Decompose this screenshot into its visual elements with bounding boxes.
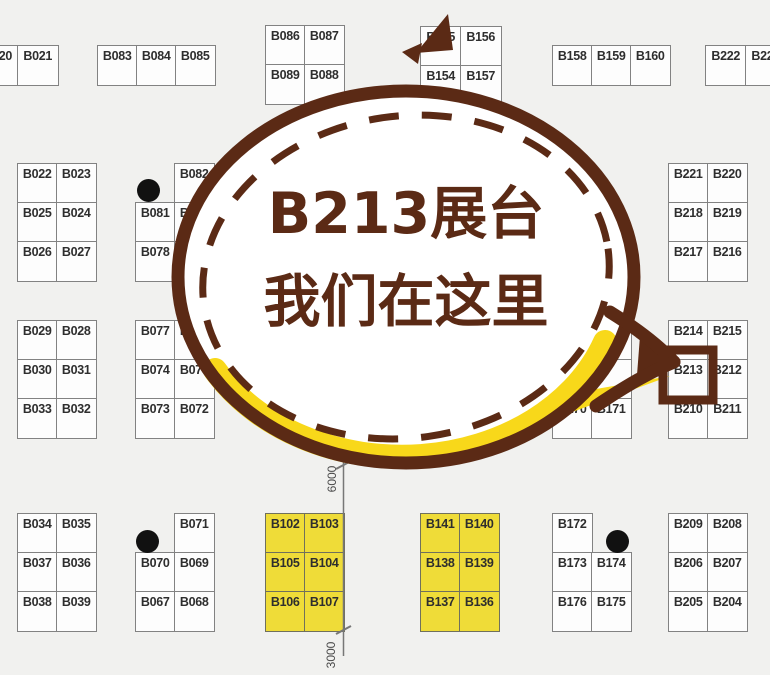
booth-label: B167	[597, 324, 626, 338]
booth-b221: B221	[668, 163, 709, 204]
booth-label: B087	[310, 29, 339, 43]
booth-b154: B154	[420, 65, 462, 106]
booth-b032: B032	[56, 398, 97, 439]
booth-label: B026	[23, 245, 52, 259]
booth-b083: B083	[97, 45, 138, 86]
booth-b031: B031	[56, 359, 97, 400]
booth-label: B221	[674, 167, 703, 181]
booth-label: B160	[636, 49, 665, 63]
booth-label: B029	[23, 324, 52, 338]
booth-label: B103	[310, 517, 339, 531]
booth-label: B206	[674, 556, 703, 570]
booth-b068: B068	[174, 591, 215, 632]
booth-label: B174	[597, 556, 626, 570]
booth-b138: B138	[420, 552, 461, 593]
booth-b222: B222	[705, 45, 747, 86]
booth-label: B156	[466, 30, 495, 44]
booth-b085: B085	[175, 45, 216, 86]
booth-label: B027	[62, 245, 91, 259]
booth-b087: B087	[304, 25, 345, 66]
booth-b207: B207	[707, 552, 748, 593]
booth-b035: B035	[56, 513, 97, 554]
booth-b218: B218	[668, 202, 709, 243]
booth-label: B170	[558, 402, 587, 416]
booth-label: B068	[180, 595, 209, 609]
booth-b038: B038	[17, 591, 58, 632]
booth-label: B023	[62, 167, 91, 181]
booth-label: B088	[310, 68, 339, 82]
booth-label: B085	[181, 49, 210, 63]
booth-b208: B208	[707, 513, 748, 554]
booth-label: B220	[713, 167, 742, 181]
booth-b037: B037	[17, 552, 58, 593]
booth-label: B210	[674, 402, 703, 416]
booth-label: B158	[558, 49, 587, 63]
booth-b070: B070	[135, 552, 176, 593]
booth-b106: B106	[265, 591, 306, 632]
booth-b172: B172	[552, 513, 593, 554]
booth-b219: B219	[707, 202, 748, 243]
booth-b206: B206	[668, 552, 709, 593]
booth-b104: B104	[304, 552, 345, 593]
dimension-label-3000: 3000	[324, 635, 338, 675]
booth-b171: B171	[591, 398, 632, 439]
booth-b022: B022	[17, 163, 58, 204]
booth-b213: B213	[668, 359, 709, 400]
booth-b107: B107	[304, 591, 345, 632]
booth-b089: B089	[265, 64, 306, 105]
booth-b071: B071	[174, 513, 215, 554]
booth-label: B176	[558, 595, 587, 609]
booth-b216: B216	[707, 241, 748, 282]
booth-label: B073	[141, 402, 170, 416]
booth-label: B035	[62, 517, 91, 531]
booth-b029: B029	[17, 320, 58, 361]
booth-label: B067	[141, 595, 170, 609]
booth-b030: B030	[17, 359, 58, 400]
booth-b160: B160	[630, 45, 671, 86]
booth-label: B141	[426, 517, 455, 531]
booth-b173: B173	[552, 552, 593, 593]
booth-b175: B175	[591, 591, 632, 632]
booth-label: B215	[713, 324, 742, 338]
booth-label: B022	[23, 167, 52, 181]
booth-b102: B102	[265, 513, 306, 554]
booth-b217: B217	[668, 241, 709, 282]
booth-label: B082	[180, 167, 209, 181]
floor-map: B020B021B083B084B085B086B087B089B088B155…	[0, 0, 770, 656]
booth-b103: B103	[304, 513, 345, 554]
booth-b074: B074	[135, 359, 176, 400]
booth-b215: B215	[707, 320, 748, 361]
booth-b080: B080	[174, 202, 215, 243]
booth-b170: B170	[552, 398, 593, 439]
booth-b155: B155	[420, 26, 462, 67]
booth-b159: B159	[591, 45, 632, 86]
booth-b069: B069	[174, 552, 215, 593]
booth-label: B159	[597, 49, 626, 63]
booth-label: B171	[597, 402, 626, 416]
booth-b077: B077	[135, 320, 176, 361]
booth-label: B217	[674, 245, 703, 259]
booth-b139: B139	[459, 552, 500, 593]
booth-label: B034	[23, 517, 52, 531]
booth-label: B024	[62, 206, 91, 220]
booth-b141: B141	[420, 513, 461, 554]
booth-label: B037	[23, 556, 52, 570]
booth-label: B071	[180, 517, 209, 531]
booth-b075: B075	[174, 359, 215, 400]
booth-label: B140	[465, 517, 494, 531]
booth-label: B209	[674, 517, 703, 531]
booth-b167: B167	[591, 320, 632, 361]
dimension-label-6000: 6000	[325, 459, 339, 499]
booth-label: B021	[23, 49, 52, 63]
pillar-dot	[606, 530, 629, 553]
booth-label: B213	[674, 363, 703, 377]
booth-b036: B036	[56, 552, 97, 593]
booth-label: B033	[23, 402, 52, 416]
booth-cell-unlabeled	[552, 320, 593, 361]
booth-label: B070	[141, 556, 170, 570]
booth-b209: B209	[668, 513, 709, 554]
booth-label: B216	[713, 245, 742, 259]
booth-label: B102	[271, 517, 300, 531]
booth-cell-unlabeled	[552, 359, 593, 400]
booth-b214: B214	[668, 320, 709, 361]
booth-b174: B174	[591, 552, 632, 593]
booth-label: B077	[141, 324, 170, 338]
booth-label: B136	[465, 595, 494, 609]
booth-label: B157	[466, 69, 495, 83]
booth-label: B080	[180, 206, 209, 220]
booth-label: B155	[426, 30, 455, 44]
booth-b205: B205	[668, 591, 709, 632]
booth-label: B222	[711, 49, 740, 63]
booth-label: B086	[271, 29, 300, 43]
booth-b212: B212	[707, 359, 748, 400]
booth-label: B205	[674, 595, 703, 609]
pillar-dot	[136, 530, 159, 553]
booth-b027: B027	[56, 241, 97, 282]
booth-label: B207	[713, 556, 742, 570]
booth-label: B030	[23, 363, 52, 377]
booth-b140: B140	[459, 513, 500, 554]
booth-label: B025	[23, 206, 52, 220]
booth-b204: B204	[707, 591, 748, 632]
booth-b076: B076	[174, 320, 215, 361]
booth-label: B075	[180, 363, 209, 377]
booth-b081: B081	[135, 202, 176, 243]
booth-label: B208	[713, 517, 742, 531]
booth-b020: B020	[0, 45, 19, 86]
booth-label: B223	[751, 49, 770, 63]
booth-label: B069	[180, 556, 209, 570]
booth-b210: B210	[668, 398, 709, 439]
booth-label: B076	[180, 324, 209, 338]
booth-b158: B158	[552, 45, 593, 86]
booth-label: B219	[713, 206, 742, 220]
booth-label: B106	[271, 595, 300, 609]
booth-b088: B088	[304, 64, 345, 105]
booth-label: B039	[62, 595, 91, 609]
booth-label: B204	[713, 595, 742, 609]
booth-b025: B025	[17, 202, 58, 243]
booth-b026: B026	[17, 241, 58, 282]
booth-label: B138	[426, 556, 455, 570]
booth-label: B139	[465, 556, 494, 570]
booth-b086: B086	[265, 25, 306, 66]
booth-b176: B176	[552, 591, 593, 632]
booth-b078: B078	[135, 241, 176, 282]
booth-b023: B023	[56, 163, 97, 204]
booth-label: B211	[713, 402, 741, 416]
booth-b034: B034	[17, 513, 58, 554]
booth-b105: B105	[265, 552, 306, 593]
booth-label: B032	[62, 402, 91, 416]
booth-label: B172	[558, 517, 587, 531]
booth-label: B212	[713, 363, 742, 377]
booth-label: B105	[271, 556, 300, 570]
pillar-dot	[137, 179, 160, 202]
booth-label: B175	[597, 595, 626, 609]
booth-b067: B067	[135, 591, 176, 632]
booth-label: B107	[310, 595, 339, 609]
booth-b082: B082	[174, 163, 215, 204]
booth-label: B079	[180, 245, 209, 259]
booth-label: B028	[62, 324, 91, 338]
booth-b211: B211	[707, 398, 748, 439]
booth-label: B074	[141, 363, 170, 377]
booth-label: B038	[23, 595, 52, 609]
booth-b079: B079	[174, 241, 215, 282]
booth-b039: B039	[56, 591, 97, 632]
booth-label: B081	[141, 206, 170, 220]
booth-b157: B157	[460, 65, 502, 106]
booth-cell-unlabeled	[591, 359, 632, 400]
booth-label: B020	[0, 49, 12, 63]
booth-b220: B220	[707, 163, 748, 204]
booth-b033: B033	[17, 398, 58, 439]
booth-label: B084	[142, 49, 171, 63]
booth-label: B173	[558, 556, 587, 570]
booth-label: B218	[674, 206, 703, 220]
booth-b073: B073	[135, 398, 176, 439]
booth-b084: B084	[136, 45, 177, 86]
booth-b072: B072	[174, 398, 215, 439]
booth-b136: B136	[459, 591, 500, 632]
booth-b028: B028	[56, 320, 97, 361]
booth-b137: B137	[420, 591, 461, 632]
booth-b024: B024	[56, 202, 97, 243]
booth-b156: B156	[460, 26, 502, 67]
booth-label: B031	[62, 363, 91, 377]
booth-label: B089	[271, 68, 300, 82]
booth-label: B078	[141, 245, 170, 259]
booth-label: B214	[674, 324, 703, 338]
booth-label: B137	[426, 595, 455, 609]
booth-label: B036	[62, 556, 91, 570]
booth-b021: B021	[17, 45, 59, 86]
booth-b223: B223	[745, 45, 770, 86]
booth-label: B083	[103, 49, 132, 63]
booth-label: B104	[310, 556, 339, 570]
booth-label: B154	[426, 69, 455, 83]
booth-label: B072	[180, 402, 209, 416]
